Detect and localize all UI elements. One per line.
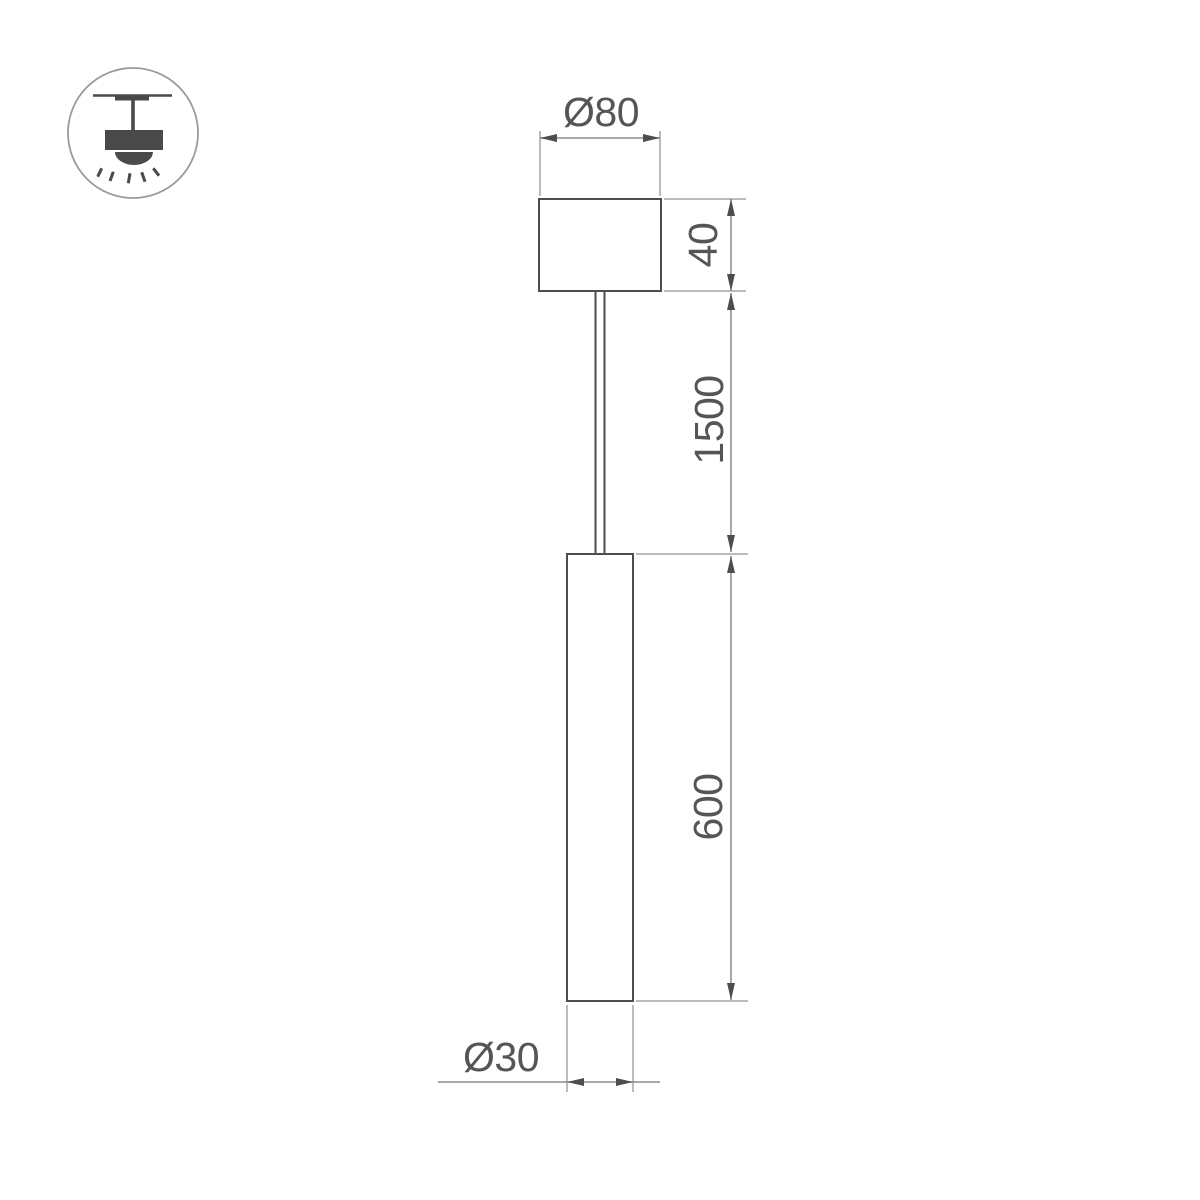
arrow-left-icon bbox=[567, 1078, 584, 1086]
arrow-up-icon bbox=[727, 199, 735, 216]
dimension-tube-diameter: Ø30 bbox=[438, 1034, 660, 1086]
pendant-ceiling-light-icon bbox=[68, 68, 198, 198]
icon-ceiling-mount-bar bbox=[115, 96, 149, 101]
arrow-right-icon bbox=[616, 1078, 633, 1086]
icon-pendant-stem bbox=[131, 100, 135, 131]
arrow-down-icon bbox=[727, 274, 735, 291]
arrow-left-icon bbox=[540, 134, 557, 142]
arrow-down-icon bbox=[727, 535, 735, 552]
label-tube-length: 600 bbox=[685, 774, 731, 841]
dimension-canopy-diameter: Ø80 bbox=[540, 89, 660, 142]
arrow-right-icon bbox=[643, 134, 660, 142]
label-suspension-length: 1500 bbox=[686, 375, 732, 464]
label-canopy-height: 40 bbox=[680, 223, 726, 268]
label-canopy-diameter: Ø80 bbox=[563, 89, 639, 135]
dimension-drawing-page: Ø80 40 1500 600 Ø30 bbox=[0, 0, 1200, 1200]
arrow-up-icon bbox=[727, 293, 735, 310]
lamp-outline bbox=[539, 199, 661, 1001]
arrow-down-icon bbox=[727, 983, 735, 1000]
dimension-tube-length: 600 bbox=[685, 556, 735, 1000]
canopy-outline bbox=[539, 199, 661, 291]
extension-lines bbox=[540, 131, 748, 1092]
icon-lamp-body bbox=[105, 130, 163, 150]
label-tube-diameter: Ø30 bbox=[463, 1034, 539, 1080]
technical-drawing-canvas: Ø80 40 1500 600 Ø30 bbox=[0, 0, 1200, 1200]
lamp-tube-outline bbox=[567, 554, 633, 1001]
dimension-canopy-height: 40 bbox=[680, 199, 735, 291]
dimension-suspension-length: 1500 bbox=[686, 293, 735, 552]
arrow-up-icon bbox=[727, 556, 735, 573]
